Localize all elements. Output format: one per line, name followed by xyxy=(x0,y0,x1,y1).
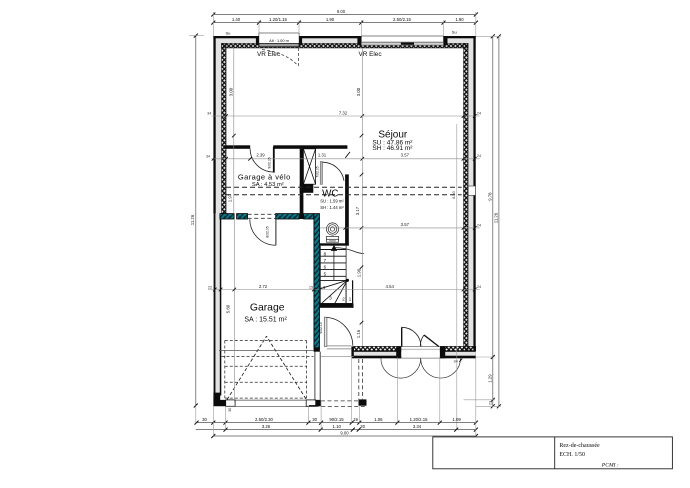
svg-text:9.00: 9.00 xyxy=(340,430,349,435)
svg-text:1.09: 1.09 xyxy=(452,417,461,422)
svg-text:SU : 1.59 m²: SU : 1.59 m² xyxy=(320,198,344,203)
svg-text:9.78: 9.78 xyxy=(487,192,492,201)
svg-text:11.26: 11.26 xyxy=(190,214,195,225)
svg-text:8.50: 8.50 xyxy=(452,191,456,198)
svg-text:24: 24 xyxy=(477,112,481,116)
svg-text:1.20/2.15: 1.20/2.15 xyxy=(410,417,429,422)
svg-text:SH : 46.91 m²: SH : 46.91 m² xyxy=(372,145,413,152)
svg-text:Su: Su xyxy=(452,30,457,35)
svg-text:24: 24 xyxy=(477,224,481,228)
svg-text:SA : 4.53 m²: SA : 4.53 m² xyxy=(252,182,284,188)
svg-text:24: 24 xyxy=(477,154,481,158)
svg-text:3.57: 3.57 xyxy=(401,222,410,227)
svg-text:15: 15 xyxy=(309,285,313,289)
svg-text:1.40: 1.40 xyxy=(232,17,241,22)
svg-text:2.50/2.15: 2.50/2.15 xyxy=(393,17,412,22)
svg-text:Rez-de-chaussée: Rez-de-chaussée xyxy=(559,443,600,449)
svg-text:4.54: 4.54 xyxy=(386,284,395,289)
svg-text:1.29: 1.29 xyxy=(487,374,492,383)
svg-text:VR Elec: VR Elec xyxy=(257,51,281,58)
svg-text:Alt : 1.00 m: Alt : 1.00 m xyxy=(269,38,289,43)
svg-text:34: 34 xyxy=(207,112,211,116)
svg-text:30: 30 xyxy=(228,408,232,412)
svg-text:30: 30 xyxy=(312,417,317,422)
svg-text:1.90: 1.90 xyxy=(326,17,335,22)
svg-text:Garage: Garage xyxy=(250,302,285,313)
svg-text:3.57: 3.57 xyxy=(401,153,410,158)
svg-text:3.26: 3.26 xyxy=(262,424,271,429)
svg-text:SA : 15.51 m²: SA : 15.51 m² xyxy=(244,317,287,324)
svg-text:19: 19 xyxy=(353,417,358,422)
svg-text:2.72: 2.72 xyxy=(259,284,268,289)
svg-text:1.06: 1.06 xyxy=(374,417,383,422)
svg-text:9.00: 9.00 xyxy=(337,9,346,14)
svg-text:SH : 1.44 m²: SH : 1.44 m² xyxy=(320,205,344,210)
svg-text:24: 24 xyxy=(477,285,481,289)
svg-text:22: 22 xyxy=(208,286,212,290)
svg-text:5.60: 5.60 xyxy=(226,304,231,313)
svg-text:90/2.05: 90/2.05 xyxy=(268,157,272,168)
svg-text:90/2.15: 90/2.15 xyxy=(319,322,323,333)
svg-text:1.31: 1.31 xyxy=(318,153,327,158)
svg-text:Garage à vélo: Garage à vélo xyxy=(238,173,291,182)
svg-text:1.90: 1.90 xyxy=(357,268,362,277)
svg-text:3.00: 3.00 xyxy=(228,87,233,96)
svg-text:11.26: 11.26 xyxy=(493,212,498,223)
svg-text:2.39: 2.39 xyxy=(256,153,265,158)
svg-text:80/2.05: 80/2.05 xyxy=(265,226,269,237)
svg-text:3.00: 3.00 xyxy=(356,87,361,96)
svg-text:1.90: 1.90 xyxy=(455,17,464,22)
svg-text:3.17: 3.17 xyxy=(355,206,360,215)
svg-text:1.97: 1.97 xyxy=(227,193,232,202)
svg-text:7.32: 7.32 xyxy=(339,110,348,115)
svg-text:1.16: 1.16 xyxy=(356,329,361,338)
svg-text:22: 22 xyxy=(488,401,492,405)
svg-text:PCMI :: PCMI : xyxy=(601,463,619,469)
svg-text:30: 30 xyxy=(202,417,207,422)
svg-text:34: 34 xyxy=(206,155,210,159)
svg-text:70/2.05: 70/2.05 xyxy=(315,166,319,177)
svg-text:20: 20 xyxy=(360,424,365,429)
svg-text:Su: Su xyxy=(226,31,231,36)
svg-text:2.50/2.30: 2.50/2.30 xyxy=(255,417,274,422)
svg-text:1.10: 1.10 xyxy=(333,424,342,429)
svg-text:1.20/1.15: 1.20/1.15 xyxy=(269,17,288,22)
svg-text:90/2.15: 90/2.15 xyxy=(329,417,344,422)
svg-text:ECH. 1/50: ECH. 1/50 xyxy=(559,452,585,458)
svg-text:34: 34 xyxy=(454,360,458,364)
svg-text:3.34: 3.34 xyxy=(413,424,422,429)
